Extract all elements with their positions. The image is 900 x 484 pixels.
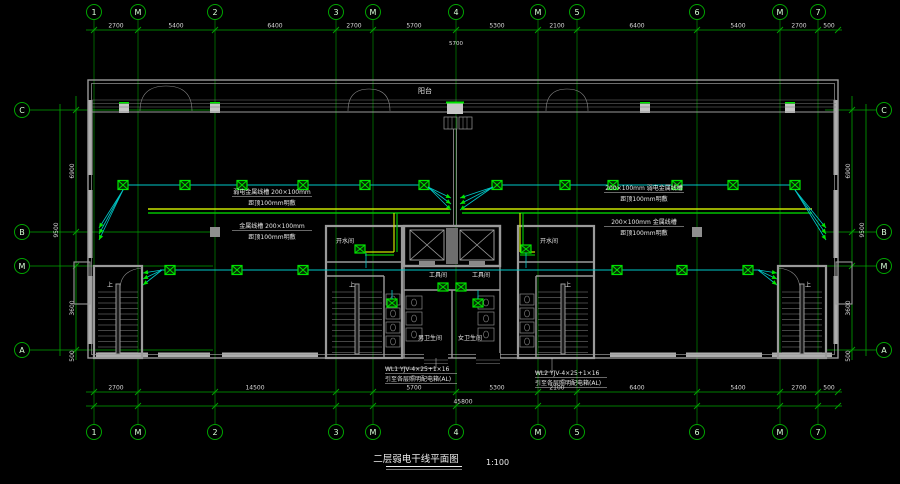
toilet-stall bbox=[406, 312, 422, 325]
dimension-label: 500 bbox=[69, 350, 76, 362]
south-opening-right bbox=[476, 353, 500, 360]
toilet-stall bbox=[386, 336, 400, 347]
room-label: 上 bbox=[349, 281, 355, 289]
room-label: 女卫生间 bbox=[458, 334, 482, 342]
axis-bubble-label: M bbox=[370, 428, 377, 437]
wire-branch bbox=[99, 190, 123, 240]
dimension-label: 5300 bbox=[489, 385, 504, 392]
wire-arrow bbox=[446, 199, 451, 204]
floor-plan-drawing: 11MM2233MM44MM5566MM77270054006400270057… bbox=[0, 0, 900, 484]
axis-bubble-label: M bbox=[535, 8, 542, 17]
dimension-label: 6900 bbox=[845, 163, 852, 178]
axis-bubble-label: 3 bbox=[333, 428, 338, 437]
dimension-label: 2700 bbox=[108, 23, 123, 30]
axis-bubble-label: M bbox=[535, 428, 542, 437]
window-strip bbox=[89, 100, 93, 175]
wire-arrow bbox=[821, 235, 826, 240]
column bbox=[692, 227, 702, 237]
dimension-label: 5400 bbox=[168, 23, 183, 30]
center-window-left bbox=[444, 117, 457, 129]
dimension-label: 500 bbox=[823, 23, 835, 30]
callout-text: 引至各层照明配电箱(AL) bbox=[385, 375, 451, 383]
axis-bubble-label: B bbox=[881, 228, 887, 237]
dimension-label: 5400 bbox=[730, 385, 745, 392]
annotation-text: 金属线槽 200×100mm bbox=[239, 222, 305, 230]
dimension-label: 500 bbox=[823, 385, 835, 392]
room-label: 工具间 bbox=[472, 271, 490, 279]
axis-grid: 11MM2233MM44MM5566MM77270054006400270057… bbox=[15, 5, 892, 440]
axis-bubble-label: 1 bbox=[91, 8, 96, 17]
axis-bubble-label: M bbox=[777, 428, 784, 437]
toilet-stall bbox=[520, 308, 534, 319]
dimension-label: 2700 bbox=[346, 23, 361, 30]
stair-rail bbox=[116, 284, 120, 354]
elevator-door-right bbox=[469, 261, 485, 266]
room-label: 男卫生间 bbox=[418, 334, 442, 342]
wire-arrow bbox=[772, 280, 777, 285]
axis-bubble-label: 5 bbox=[574, 8, 579, 17]
toilet-fixture bbox=[412, 315, 417, 322]
stair-rail bbox=[800, 284, 804, 354]
callout-text: 引至各层照明配电箱(AL) bbox=[535, 379, 601, 387]
axis-bubble-label: 5 bbox=[574, 428, 579, 437]
dimension-label: 2700 bbox=[108, 385, 123, 392]
elevator-door-left bbox=[419, 261, 435, 266]
dimension-label: 5300 bbox=[489, 23, 504, 30]
axis-bubble-label: 6 bbox=[694, 428, 699, 437]
room-label: 上 bbox=[565, 281, 571, 289]
window-strip bbox=[89, 190, 93, 258]
dimension-label: 9500 bbox=[859, 222, 866, 237]
toilet-stall bbox=[406, 296, 422, 309]
axis-bubble-label: 4 bbox=[453, 428, 458, 437]
axis-bubble-label: A bbox=[881, 346, 887, 355]
annotation-text: 200×100mm 弱电金属线槽 bbox=[605, 184, 683, 192]
axis-bubble-label: B bbox=[19, 228, 25, 237]
callout-text: WL2 YJV-4×25+1×16 bbox=[535, 370, 600, 377]
axis-bubble-label: 7 bbox=[815, 8, 820, 17]
elevator-car-right-x bbox=[460, 230, 494, 260]
dimension-label: 2700 bbox=[791, 23, 806, 30]
axis-bubble-label: 2 bbox=[212, 428, 217, 437]
wire-branch bbox=[460, 187, 493, 204]
dimension-label: 5700 bbox=[406, 23, 421, 30]
axis-bubble-label: 2 bbox=[212, 8, 217, 17]
axis-bubble-label: 7 bbox=[815, 428, 820, 437]
room-label: 工具间 bbox=[429, 271, 447, 279]
axis-bubble-label: 3 bbox=[333, 8, 338, 17]
center-window-right bbox=[459, 117, 472, 129]
room-label: 上 bbox=[805, 281, 811, 289]
wire-arrow bbox=[772, 270, 777, 274]
toilet-fixture bbox=[391, 338, 396, 345]
annotation-text: 弱电金属线槽 200×100mm bbox=[233, 188, 311, 196]
axis-bubble-label: 4 bbox=[453, 8, 458, 17]
toilet-fixture bbox=[391, 324, 396, 331]
dimension-label: 5700 bbox=[406, 385, 421, 392]
axis-bubble-label: M bbox=[135, 8, 142, 17]
room-label: 上 bbox=[107, 281, 113, 289]
wire-branch bbox=[460, 187, 493, 210]
dimension-label: 3600 bbox=[845, 300, 852, 315]
stairs-and-fixtures bbox=[98, 284, 822, 354]
wire-branch bbox=[795, 190, 826, 240]
wire-branch bbox=[99, 190, 123, 228]
elevator-car-left-x bbox=[410, 230, 444, 260]
axis-bubble-label: M bbox=[19, 262, 26, 271]
axis-bubble-label: C bbox=[881, 106, 887, 115]
wire-branch bbox=[460, 187, 493, 198]
dimension-label: 9500 bbox=[53, 222, 60, 237]
toilet-stall bbox=[386, 308, 400, 319]
toilet-stall bbox=[386, 322, 400, 333]
toilet-stall bbox=[478, 312, 494, 325]
cad-viewport[interactable]: 11MM2233MM44MM5566MM77270054006400270057… bbox=[0, 0, 900, 484]
dimension-label: 6400 bbox=[267, 23, 282, 30]
window-strip bbox=[834, 190, 838, 258]
toilet-fixture bbox=[412, 299, 417, 306]
wire-branch bbox=[795, 190, 826, 234]
stair-rail bbox=[355, 284, 359, 354]
center-column bbox=[447, 103, 463, 114]
wire-arrow bbox=[143, 280, 148, 285]
toilet-fixture bbox=[484, 315, 489, 322]
dimension-label: 500 bbox=[845, 350, 852, 362]
wire-arrow bbox=[143, 270, 148, 274]
dimension-label: 45800 bbox=[453, 399, 472, 406]
axis-bubble-label: M bbox=[370, 8, 377, 17]
drawing-scale: 1:100 bbox=[486, 458, 509, 467]
elevator-shaft-column bbox=[446, 228, 458, 264]
toilet-fixture bbox=[391, 310, 396, 317]
window-strip bbox=[834, 100, 838, 175]
annotation-text: 距顶100mm明敷 bbox=[620, 229, 667, 237]
room-label: 开水间 bbox=[540, 237, 558, 245]
callout-text: WL1 YJV-4×25+1×16 bbox=[385, 366, 450, 373]
toilet-fixture bbox=[525, 338, 530, 345]
dimension-label: 2100 bbox=[549, 23, 564, 30]
dimension-label: 5700 bbox=[449, 41, 463, 47]
columns-and-windows bbox=[89, 100, 838, 357]
annotation-text: 距顶100mm明敷 bbox=[248, 233, 295, 241]
low-voltage-wiring bbox=[99, 181, 826, 308]
dimension-label: 6900 bbox=[69, 163, 76, 178]
dimension-label: 2700 bbox=[791, 385, 806, 392]
axis-bubble-label: M bbox=[135, 428, 142, 437]
room-label: 开水间 bbox=[336, 237, 354, 245]
building-structure bbox=[74, 80, 852, 372]
axis-bubble-label: 6 bbox=[694, 8, 699, 17]
dimension-label: 6400 bbox=[629, 385, 644, 392]
annotation-text: 距顶100mm明敷 bbox=[248, 199, 295, 207]
axis-bubble-label: 1 bbox=[91, 428, 96, 437]
dimension-label: 3600 bbox=[69, 300, 76, 315]
drawing-title: 二层弱电干线平面图 bbox=[373, 453, 459, 465]
title-block: 二层弱电干线平面图 1:100 bbox=[373, 453, 509, 470]
annotation-text: 200×100mm 金属线槽 bbox=[611, 218, 677, 226]
center-window-mullions bbox=[448, 117, 467, 129]
toilet-fixture bbox=[525, 324, 530, 331]
toilet-stall bbox=[520, 322, 534, 333]
axis-bubble-label: M bbox=[881, 262, 888, 271]
dimension-label: 5400 bbox=[730, 23, 745, 30]
toilet-fixture bbox=[412, 331, 417, 338]
toilet-stall bbox=[520, 294, 534, 305]
toilet-fixture bbox=[484, 331, 489, 338]
axis-bubble-label: M bbox=[777, 8, 784, 17]
column bbox=[210, 227, 220, 237]
stair-rail bbox=[561, 284, 565, 354]
room-label: 阳台 bbox=[418, 86, 432, 95]
dimension-label: 6400 bbox=[629, 23, 644, 30]
dimension-label: 14500 bbox=[245, 385, 264, 392]
axis-bubble-label: A bbox=[19, 346, 25, 355]
toilet-fixture bbox=[525, 310, 530, 317]
toilet-fixture bbox=[484, 299, 489, 306]
toilet-stall bbox=[520, 336, 534, 347]
wire-arrow bbox=[460, 194, 465, 198]
annotation-text: 距顶100mm明敷 bbox=[620, 195, 667, 203]
south-thresholds bbox=[424, 360, 500, 364]
axis-bubble-label: C bbox=[19, 106, 25, 115]
toilet-fixture bbox=[525, 296, 530, 303]
